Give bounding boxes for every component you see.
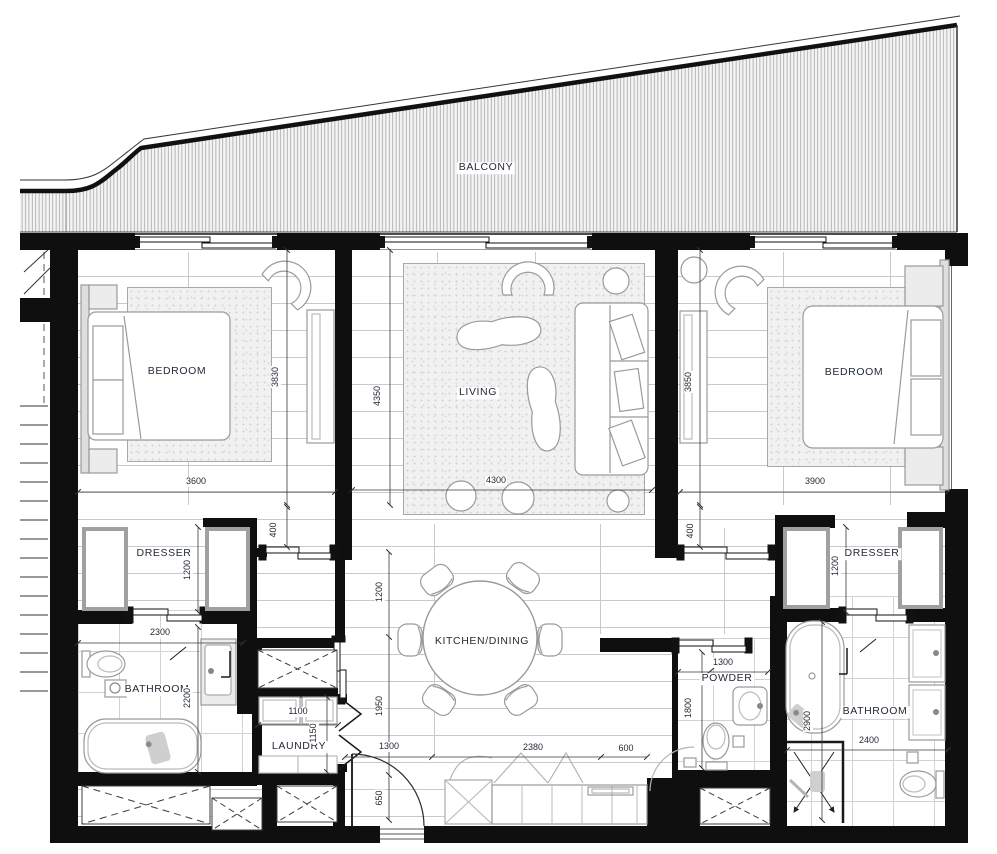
- nightstand: [905, 447, 943, 485]
- room-label-bedroom-left: BEDROOM: [146, 366, 208, 378]
- toilet-tank: [936, 771, 944, 798]
- sofa-pillow: [614, 369, 643, 412]
- sofa: [575, 303, 648, 475]
- sliding-door-powder: [672, 638, 752, 653]
- faucet: [933, 709, 939, 715]
- shaft-box: [212, 798, 262, 830]
- dim-door-return-right: 400: [686, 522, 696, 539]
- balcony: [20, 16, 960, 232]
- shaft-box: [258, 650, 337, 688]
- dim-bathroom-right-depth: 2900: [803, 710, 813, 732]
- ottomans: [446, 481, 629, 514]
- wardrobe-left: [307, 310, 334, 443]
- sliding-door-bathroom-right: [839, 607, 913, 623]
- toilet-tank: [706, 762, 727, 770]
- wall-living-bed-right: [655, 233, 678, 558]
- closet: [207, 529, 248, 609]
- room-label-living: LIVING: [457, 387, 499, 399]
- closet: [785, 529, 828, 607]
- pillow: [93, 326, 123, 380]
- coffee-table: [455, 314, 542, 352]
- base-cabinets: [492, 785, 647, 824]
- dim-bedroom-right-depth: 3850: [684, 371, 694, 393]
- room-label-kitchen-dining: KITCHEN/DINING: [433, 636, 531, 648]
- dim-laundry-width: 1100: [287, 707, 308, 717]
- dim-bedroom-right-width: 3900: [804, 477, 826, 487]
- ceiling-mark: [860, 639, 876, 652]
- shaft-box: [700, 788, 770, 824]
- dim-living-depth: 4350: [373, 385, 383, 407]
- sliding-door-bathroom-left: [126, 607, 207, 623]
- wall-right: [945, 489, 968, 843]
- dim-hall-width-left: 1300: [378, 742, 400, 752]
- dim-powder-depth: 1800: [684, 697, 694, 719]
- plan-drawing: [0, 0, 997, 854]
- faucet: [757, 703, 763, 709]
- room-label-powder: POWDER: [700, 673, 755, 685]
- fixture: [684, 758, 696, 767]
- room-label-bathroom-right: BATHROOM: [841, 706, 910, 718]
- shower-head: [810, 771, 825, 792]
- dim-bathroom-left-depth: 2200: [183, 687, 193, 709]
- room-label-dresser-right: DRESSER: [843, 548, 902, 560]
- pillow: [93, 380, 123, 434]
- pillow: [911, 379, 941, 435]
- door-swing: [352, 754, 424, 826]
- dim-kitchen-depth-upper: 1200: [375, 581, 385, 603]
- closet: [900, 529, 941, 607]
- side-table: [681, 257, 707, 283]
- exterior-hatch-ticks: [20, 406, 48, 691]
- nightstand: [89, 449, 117, 473]
- wall-left: [50, 233, 78, 843]
- faucet: [208, 668, 214, 674]
- room-label-bedroom-right: BEDROOM: [823, 367, 885, 379]
- laundry-bifold-doors[interactable]: [339, 697, 361, 769]
- dim-kitchen-gap: 600: [617, 744, 634, 754]
- ceiling-mark: [170, 647, 186, 660]
- pillow: [911, 320, 941, 376]
- bed-left: [81, 285, 230, 473]
- room-label-laundry: LAUNDRY: [270, 741, 328, 753]
- sliding-door-living: [380, 233, 592, 250]
- balcony-sliding-doors[interactable]: [135, 233, 897, 250]
- sliding-door-hall-left: [259, 545, 337, 560]
- faucet: [933, 650, 939, 656]
- flush-plate: [907, 752, 918, 763]
- cabinet-swing: [450, 756, 492, 780]
- armchair-living: [502, 262, 554, 295]
- armchair-bedroom-right: [704, 255, 764, 315]
- shaft-box: [277, 786, 337, 822]
- dim-bathroom-right-width: 2400: [858, 736, 880, 746]
- dim-bedroom-left-width: 3600: [185, 477, 207, 487]
- dim-living-width: 4300: [485, 476, 507, 486]
- dim-powder-width: 1300: [712, 658, 734, 668]
- dim-kitchen-depth-lower: 1950: [375, 695, 385, 717]
- armchair-bedroom-left: [261, 250, 321, 310]
- dim-entry-depth: 650: [375, 789, 385, 806]
- dim-kitchen-width: 2380: [522, 743, 544, 753]
- dim-bathroom-left-width: 2300: [149, 628, 171, 638]
- dim-dresser-left-depth: 1200: [183, 559, 193, 581]
- floor-drain: [733, 736, 744, 747]
- sliding-door-hall-right: [677, 545, 775, 560]
- room-label-bathroom-left: BATHROOM: [123, 684, 192, 696]
- cabinet-swing: [494, 753, 583, 783]
- sliding-door-bedroom-right: [750, 233, 897, 250]
- shaft-box: [82, 786, 210, 824]
- wall-bed-left-living: [335, 233, 352, 560]
- coffee-table: [525, 365, 563, 452]
- nightstand: [89, 285, 117, 309]
- nightstand: [905, 266, 943, 306]
- bathroom-left-fixtures: [82, 639, 236, 773]
- balcony-label: BALCONY: [457, 162, 515, 174]
- side-table: [603, 268, 629, 294]
- closet: [84, 529, 126, 609]
- dim-door-return-left: 400: [269, 521, 279, 538]
- dim-dresser-right-depth: 1200: [831, 555, 841, 577]
- dim-laundry-depth: 1150: [309, 722, 319, 743]
- floor-plan: BALCONY BEDROOM LIVING BEDROOM DRESSER D…: [0, 0, 997, 854]
- sliding-door-bedroom-left: [135, 233, 277, 250]
- dim-bedroom-left-depth: 3830: [271, 366, 281, 388]
